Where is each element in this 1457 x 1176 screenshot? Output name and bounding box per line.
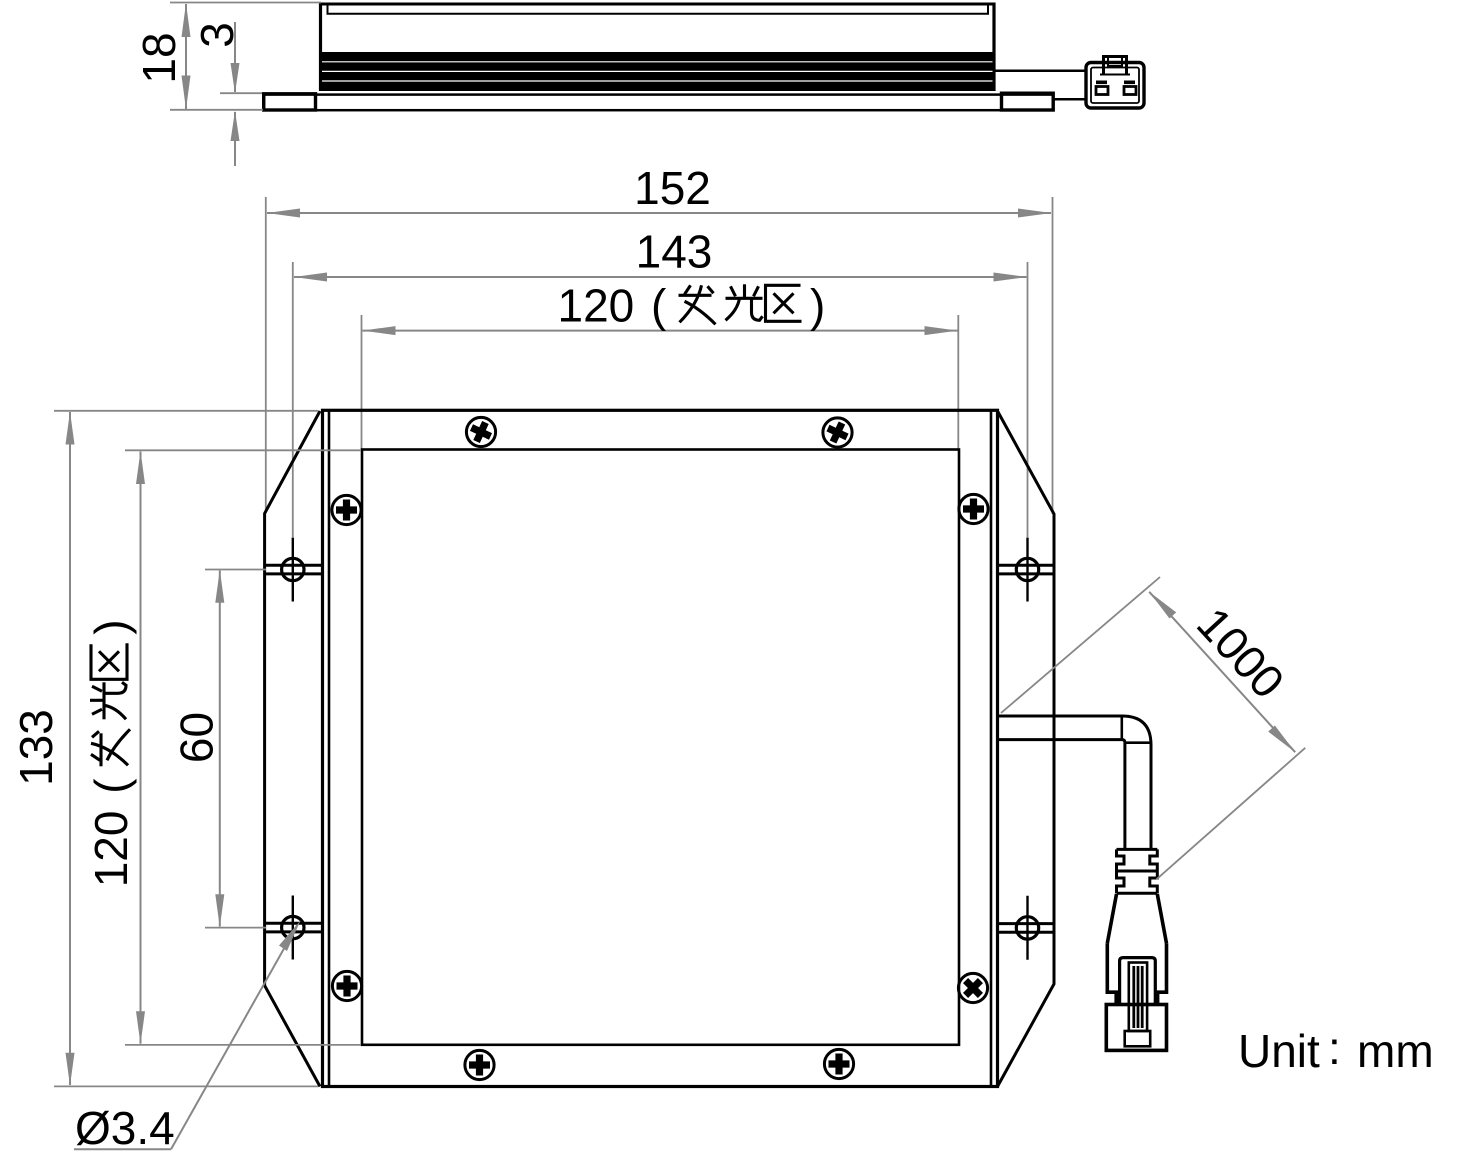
svg-text:152: 152 [634,162,711,214]
svg-text:133: 133 [10,709,62,786]
svg-text:60: 60 [171,712,223,763]
svg-text:Unit: Unit [1238,1025,1320,1077]
svg-text:3: 3 [191,22,243,48]
svg-text:18: 18 [133,32,185,83]
svg-text:143: 143 [636,226,713,278]
svg-text:Ø3.4: Ø3.4 [75,1102,175,1154]
svg-text:mm: mm [1357,1025,1434,1077]
svg-text::: : [1328,1022,1341,1074]
